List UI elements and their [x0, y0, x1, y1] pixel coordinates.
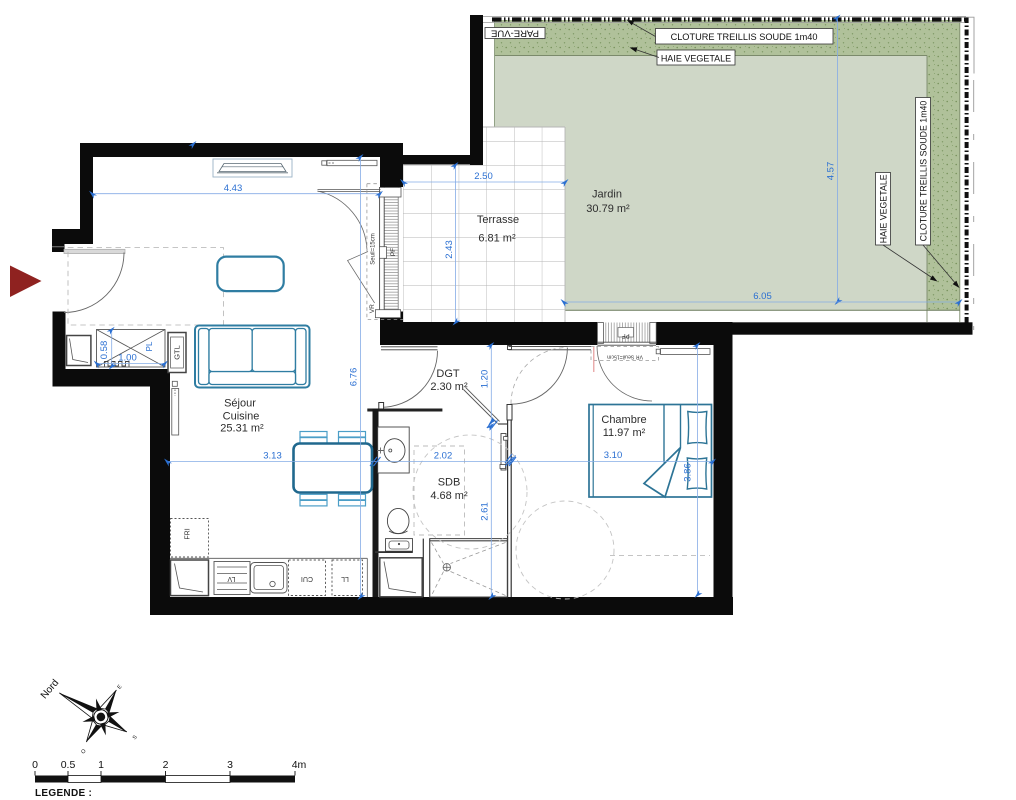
- svg-text:1: 1: [98, 759, 104, 771]
- svg-text:PF: PF: [390, 248, 397, 256]
- svg-text:4.68 m²: 4.68 m²: [430, 490, 468, 502]
- svg-text:4.57: 4.57: [826, 162, 837, 181]
- svg-text:2.02: 2.02: [434, 451, 453, 462]
- svg-text:VR Seuil=15cm: VR Seuil=15cm: [607, 354, 643, 360]
- svg-text:6.81 m²: 6.81 m²: [478, 233, 516, 245]
- svg-text:Cuisine: Cuisine: [223, 411, 260, 423]
- svg-text:Seuil=15cm: Seuil=15cm: [371, 233, 377, 265]
- svg-text:PARE-VUE: PARE-VUE: [491, 27, 539, 38]
- svg-text:0.58: 0.58: [99, 341, 110, 360]
- svg-text:25.31 m²: 25.31 m²: [220, 423, 264, 435]
- svg-text:Jardin: Jardin: [592, 189, 622, 201]
- svg-text:3: 3: [227, 759, 233, 771]
- svg-text:Chambre: Chambre: [601, 414, 646, 426]
- svg-text:CUI: CUI: [301, 575, 313, 582]
- svg-text:FRI: FRI: [185, 528, 192, 539]
- svg-text:Séjour: Séjour: [224, 398, 256, 410]
- svg-text:VR: VR: [369, 304, 376, 313]
- svg-text:2: 2: [163, 759, 169, 771]
- svg-text:6.05: 6.05: [753, 291, 772, 302]
- svg-text:6.76: 6.76: [349, 368, 360, 387]
- svg-text:GTL: GTL: [173, 345, 182, 360]
- svg-text:4.43: 4.43: [224, 183, 243, 194]
- svg-text:1.00: 1.00: [118, 353, 137, 364]
- svg-text:30.79 m²: 30.79 m²: [586, 203, 630, 215]
- svg-text:Terrasse: Terrasse: [477, 214, 519, 226]
- svg-text:3.13: 3.13: [263, 451, 282, 462]
- svg-text:0: 0: [32, 759, 38, 771]
- svg-text:CLOTURE TREILLIS SOUDE 1m40: CLOTURE TREILLIS SOUDE 1m40: [671, 32, 818, 42]
- svg-text:HAIE VEGETALE: HAIE VEGETALE: [661, 53, 731, 63]
- svg-text:CLOTURE TREILLIS SOUDE 1m40: CLOTURE TREILLIS SOUDE 1m40: [919, 101, 929, 242]
- svg-text:3.10: 3.10: [604, 450, 623, 461]
- svg-text:2.43: 2.43: [444, 240, 455, 259]
- svg-text:SDB: SDB: [438, 477, 461, 489]
- svg-text:LL: LL: [341, 575, 349, 582]
- svg-text:4m: 4m: [292, 759, 307, 771]
- svg-text:2.30 m²: 2.30 m²: [430, 381, 468, 393]
- svg-text:0.5: 0.5: [61, 759, 76, 771]
- svg-text:PF: PF: [622, 332, 630, 338]
- svg-text:3.86: 3.86: [683, 463, 694, 482]
- svg-text:11.97 m²: 11.97 m²: [603, 427, 646, 439]
- svg-text:2.61: 2.61: [480, 502, 491, 521]
- svg-text:LEGENDE :: LEGENDE :: [35, 788, 92, 799]
- svg-text:1.20: 1.20: [480, 370, 491, 389]
- svg-text:PL: PL: [145, 341, 154, 351]
- svg-text:2.50: 2.50: [474, 171, 493, 182]
- svg-text:DGT: DGT: [436, 368, 460, 380]
- svg-text:LV: LV: [227, 575, 235, 582]
- svg-text:HAIE VEGETALE: HAIE VEGETALE: [879, 174, 889, 243]
